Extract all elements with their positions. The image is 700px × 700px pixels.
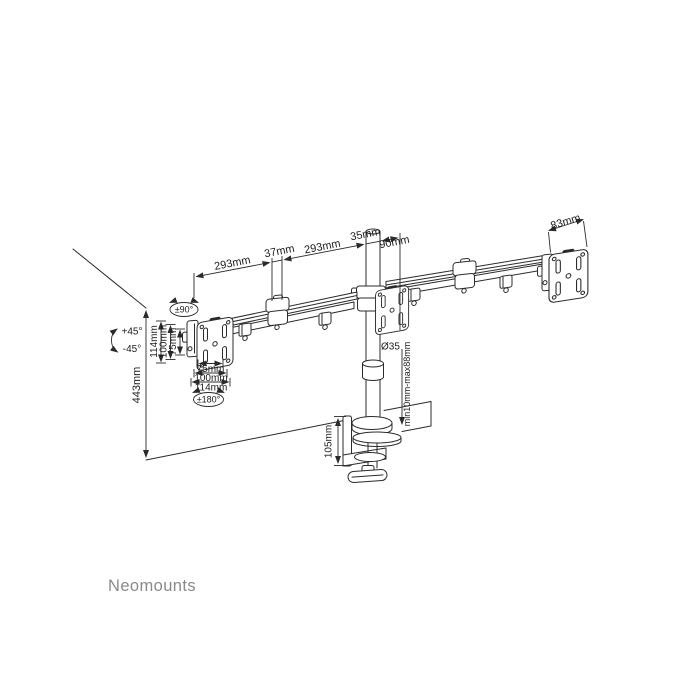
tilt-up-label: +45°: [122, 327, 143, 338]
dim-head-offset-label: 90mm: [378, 234, 410, 252]
product-diagram-page: 293mm 37mm 293mm 35mm 90mm 83mm 443mm Ø3…: [0, 0, 700, 700]
vesa-plate-right: [549, 246, 588, 303]
swivel-label: ±90°: [175, 305, 194, 315]
wall-edge-line: [73, 249, 146, 308]
tilt-arc-arrow: [111, 329, 117, 352]
dim-elbow-joint-label: 37mm: [263, 243, 295, 261]
desk-clamp: [343, 416, 401, 483]
vesa-horizontal-114-label: 114mm: [195, 383, 228, 394]
dim-pole-height-label: 443mm: [131, 367, 143, 404]
vesa-vertical-75-label: 75mm: [168, 328, 179, 356]
dim-pole-diameter-label: Ø35: [381, 342, 400, 353]
vesa-plate-left: [197, 314, 233, 371]
vesa-plate-center: [376, 283, 409, 335]
vesa-rotation-label: ±180°: [197, 395, 221, 405]
left-arm-cable-clip-2: [319, 312, 331, 330]
right-arm: [386, 255, 547, 306]
dim-inner-arm-reach-label: 293mm: [303, 238, 341, 257]
left-arm-cable-clip-1: [239, 323, 251, 341]
right-arm-cable-clip: [500, 275, 512, 293]
dim-head-plate-width-label: 83mm: [549, 212, 582, 232]
brand-logo: Neomounts: [108, 577, 196, 596]
left-arm-elbow-joint: [266, 294, 289, 331]
dim-pole-width-label: 35mm: [349, 226, 381, 244]
left-plate-pivot-bracket: [183, 320, 199, 357]
clamp-desk-thickness-range-label: min10mm-max88mm: [402, 342, 412, 427]
pole-height-collar: [363, 360, 384, 381]
tilt-down-label: -45°: [123, 344, 141, 355]
right-arm-inner-clip: [408, 288, 420, 306]
mount-dimension-diagram: 293mm 37mm 293mm 35mm 90mm 83mm 443mm Ø3…: [0, 0, 700, 700]
desk-edge-line: [146, 421, 344, 461]
right-arm-elbow-joint: [453, 258, 476, 295]
clamp-bracket-height-label: 105mm: [324, 425, 335, 458]
